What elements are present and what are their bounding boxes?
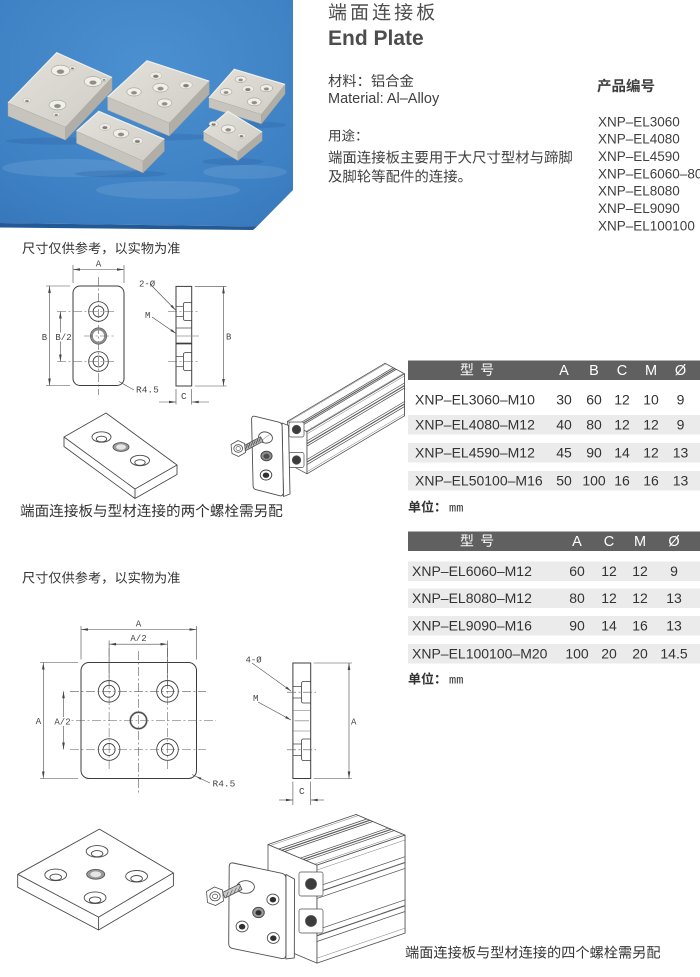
svg-text:80: 80 <box>586 417 602 433</box>
svg-text:XNP–EL8080–M12: XNP–EL8080–M12 <box>412 590 532 606</box>
svg-text:12: 12 <box>614 392 630 408</box>
svg-text:Ø: Ø <box>668 534 679 550</box>
svg-text:45: 45 <box>556 445 572 461</box>
svg-text:12: 12 <box>614 417 630 433</box>
svg-text:A: A <box>136 620 142 630</box>
svg-text:End Plate: End Plate <box>328 27 424 50</box>
svg-text:B: B <box>42 333 48 343</box>
svg-text:mm: mm <box>449 502 463 516</box>
svg-text:B: B <box>226 333 232 343</box>
svg-text:XNP–EL100100–M20: XNP–EL100100–M20 <box>412 646 548 662</box>
svg-text:XNP–EL6060–80: XNP–EL6060–80 <box>598 166 700 181</box>
svg-text:A: A <box>351 718 357 728</box>
svg-text:Material: Al–Alloy: Material: Al–Alloy <box>328 91 440 107</box>
svg-text:90: 90 <box>586 445 602 461</box>
svg-text:12: 12 <box>601 563 617 579</box>
svg-text:20: 20 <box>632 646 648 662</box>
svg-text:Ø: Ø <box>675 363 686 379</box>
svg-text:12: 12 <box>643 445 659 461</box>
svg-text:XNP–EL4080–M12: XNP–EL4080–M12 <box>415 417 535 433</box>
svg-text:M: M <box>253 694 258 704</box>
svg-text:XNP–EL3060: XNP–EL3060 <box>598 114 680 129</box>
svg-text:50: 50 <box>556 473 572 489</box>
svg-text:9: 9 <box>677 417 685 433</box>
svg-text:60: 60 <box>569 563 585 579</box>
svg-text:80: 80 <box>569 590 585 606</box>
svg-text:C: C <box>617 363 627 379</box>
svg-text:13: 13 <box>666 590 682 606</box>
svg-text:A/2: A/2 <box>54 718 70 728</box>
svg-text:mm: mm <box>449 674 463 688</box>
svg-text:A: A <box>36 717 42 727</box>
svg-text:R4.5: R4.5 <box>213 779 236 790</box>
svg-text:A: A <box>572 534 582 550</box>
svg-text:XNP–EL4590–M12: XNP–EL4590–M12 <box>415 445 535 461</box>
svg-text:A: A <box>96 260 102 270</box>
svg-text:XNP–EL9090: XNP–EL9090 <box>598 201 680 216</box>
svg-text:2-Ø: 2-Ø <box>139 280 156 290</box>
svg-text:XNP–EL6060–M12: XNP–EL6060–M12 <box>412 563 532 579</box>
svg-text:C: C <box>604 534 614 550</box>
svg-text:XNP–EL8080: XNP–EL8080 <box>598 184 680 199</box>
svg-text:10: 10 <box>643 392 659 408</box>
svg-text:12: 12 <box>632 590 648 606</box>
svg-text:C: C <box>299 786 305 797</box>
svg-text:M: M <box>145 311 150 321</box>
svg-text:A/2: A/2 <box>130 634 146 644</box>
svg-text:XNP–EL3060–M10: XNP–EL3060–M10 <box>415 392 535 408</box>
svg-text:16: 16 <box>643 473 659 489</box>
svg-text:16: 16 <box>614 473 630 489</box>
svg-text:20: 20 <box>601 646 617 662</box>
svg-text:30: 30 <box>556 392 572 408</box>
svg-text:40: 40 <box>556 417 572 433</box>
svg-text:14: 14 <box>601 618 617 634</box>
svg-text:XNP–EL4590: XNP–EL4590 <box>598 149 680 164</box>
svg-text:60: 60 <box>586 392 602 408</box>
svg-text:M: M <box>634 534 646 550</box>
svg-text:100: 100 <box>565 646 589 662</box>
svg-text:100: 100 <box>582 473 606 489</box>
svg-text:14: 14 <box>614 445 630 461</box>
svg-text:12: 12 <box>632 563 648 579</box>
svg-text:R4.5: R4.5 <box>136 385 159 396</box>
svg-text:16: 16 <box>632 618 648 634</box>
svg-text:12: 12 <box>643 417 659 433</box>
svg-text:4-Ø: 4-Ø <box>246 656 263 666</box>
svg-text:13: 13 <box>673 473 689 489</box>
svg-text:14.5: 14.5 <box>660 646 687 662</box>
svg-text:90: 90 <box>569 618 585 634</box>
svg-text:XNP–EL50100–M16: XNP–EL50100–M16 <box>415 473 543 489</box>
svg-text:12: 12 <box>601 590 617 606</box>
svg-text:C: C <box>181 391 187 402</box>
svg-text:XNP–EL4080: XNP–EL4080 <box>598 132 680 147</box>
svg-text:M: M <box>645 363 657 379</box>
svg-text:A: A <box>559 363 569 379</box>
svg-text:9: 9 <box>670 563 678 579</box>
svg-text:XNP–EL9090–M16: XNP–EL9090–M16 <box>412 618 532 634</box>
svg-text:B/2: B/2 <box>55 333 71 343</box>
svg-text:B: B <box>589 363 599 379</box>
svg-text:9: 9 <box>677 392 685 408</box>
svg-text:13: 13 <box>666 618 682 634</box>
svg-text:XNP–EL100100: XNP–EL100100 <box>598 218 695 233</box>
svg-text:13: 13 <box>673 445 689 461</box>
